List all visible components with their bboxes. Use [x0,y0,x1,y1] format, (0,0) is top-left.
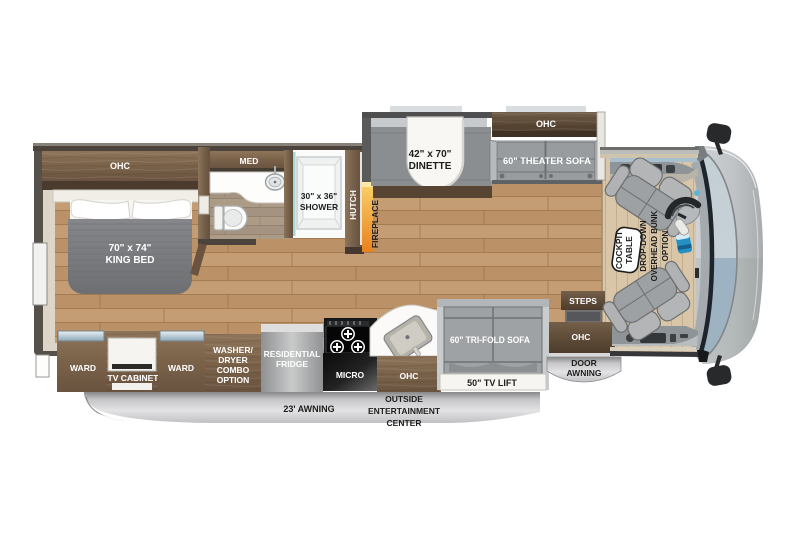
svg-text:COCKPIT: COCKPIT [614,230,624,269]
svg-text:OVERHEAD BUNK: OVERHEAD BUNK [650,210,659,281]
svg-text:OUTSIDE: OUTSIDE [385,394,423,404]
svg-text:DRYER: DRYER [218,355,247,365]
svg-text:KING BED: KING BED [106,255,155,266]
svg-text:TABLE: TABLE [624,236,634,264]
svg-text:WARD: WARD [70,363,96,373]
svg-text:OHC: OHC [572,332,591,342]
svg-text:DINETTE: DINETTE [409,161,452,172]
svg-text:TV CABINET: TV CABINET [108,373,160,383]
svg-text:CENTER: CENTER [387,418,422,428]
svg-text:OHC: OHC [110,161,131,171]
svg-text:COMBO: COMBO [217,365,250,375]
svg-text:MICRO: MICRO [336,370,365,380]
svg-text:OPTION: OPTION [661,230,670,261]
svg-text:RESIDENTIAL: RESIDENTIAL [264,349,321,359]
svg-text:42" x 70": 42" x 70" [409,149,452,160]
svg-text:DOOR: DOOR [571,358,597,368]
svg-text:MED: MED [240,156,259,166]
svg-text:OHC: OHC [536,119,557,129]
svg-text:23' AWNING: 23' AWNING [283,404,334,414]
svg-text:ENTERTAINMENT: ENTERTAINMENT [368,406,441,416]
svg-text:STEPS: STEPS [569,296,597,306]
svg-text:FRIDGE: FRIDGE [276,359,308,369]
svg-text:SHOWER: SHOWER [300,202,338,212]
svg-text:60" TRI-FOLD SOFA: 60" TRI-FOLD SOFA [450,335,530,345]
svg-text:AWNING: AWNING [567,368,602,378]
svg-text:OPTION: OPTION [217,375,250,385]
svg-text:WASHER/: WASHER/ [213,345,253,355]
svg-text:30" x 36": 30" x 36" [301,191,337,201]
svg-text:OHC: OHC [400,371,419,381]
svg-text:FIREPLACE: FIREPLACE [370,200,380,249]
svg-text:70" x 74": 70" x 74" [109,243,152,254]
svg-text:DROP-DOWN: DROP-DOWN [639,220,648,271]
svg-text:WARD: WARD [168,363,194,373]
svg-text:50" TV LIFT: 50" TV LIFT [467,378,517,388]
svg-text:60" THEATER SOFA: 60" THEATER SOFA [503,156,592,166]
svg-text:HUTCH: HUTCH [348,190,358,220]
